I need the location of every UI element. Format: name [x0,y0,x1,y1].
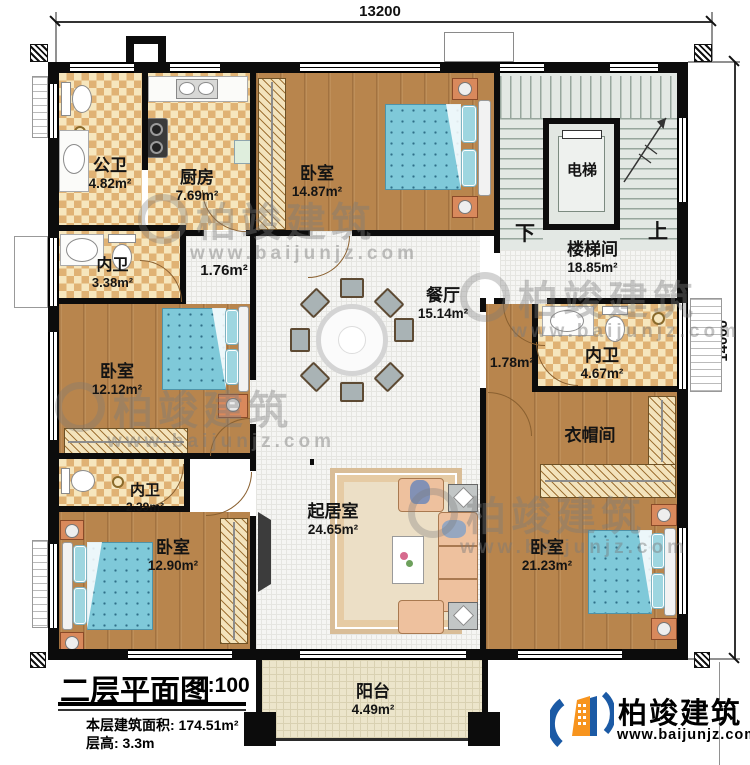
wardrobe-rail [661,400,663,462]
armchair [398,600,444,634]
room-name: 楼梯间 [535,240,650,260]
person-figure [410,480,430,504]
room-label-bedroom-top: 卧室 14.87m² [262,164,372,201]
dim-width-value: 13200 [320,3,440,20]
room-name: 阳台 [318,682,428,702]
bed-pillow [226,310,238,344]
nightstand [651,618,677,640]
toilet-tank [602,306,628,315]
room-area: 14.87m² [262,184,372,200]
stove-burner [150,123,163,136]
toilet-icon [71,470,95,492]
window [70,62,134,73]
dining-chair [340,382,364,402]
room-name: 衣帽间 [535,426,645,446]
room-name: 内卫 [552,346,652,366]
chimney-flue [134,44,158,62]
window [170,62,220,73]
bed-pillow [652,534,664,568]
corner-column [694,652,710,668]
wall [534,386,677,392]
room-name: 卧室 [62,362,172,382]
door-arc [206,472,252,516]
window [48,84,59,138]
window [48,238,59,306]
room-label-stairwell: 楼梯间 18.85m² [535,240,650,277]
room-label-dining: 餐厅 15.14m² [398,286,488,323]
bed-pillow [652,574,664,608]
dim-line-right [734,62,736,659]
window [48,332,59,440]
wardrobe-rail [68,441,184,443]
wall [250,73,256,235]
sink-icon [550,310,584,332]
window [677,528,688,614]
toilet-tank [108,234,136,243]
bed-headboard [238,306,249,392]
wardrobe-rail [271,82,273,226]
wall-stub [256,649,300,660]
bed-pillow [462,106,476,142]
wall [250,236,256,380]
room-area: 7.69m² [147,188,247,204]
toilet-tank [61,468,70,494]
corner-column [30,652,46,668]
room-area: 12.12m² [62,382,172,398]
room-area: 18.85m² [535,260,650,276]
wall [547,298,677,304]
brand-logo-icon [550,686,614,752]
wall [480,388,486,649]
toilet-icon [72,85,92,113]
corner-column [694,44,712,62]
room-name: 餐厅 [398,286,488,306]
room-area: 1.78m² [486,354,538,371]
room-area: 3.38m² [60,275,165,291]
side-table [448,602,478,630]
hall-left-area-label: 1.76m² [188,262,260,280]
room-area: 2.39m² [100,500,190,514]
room-name: 卧室 [118,538,228,558]
toilet-tank [61,82,71,116]
window [48,544,59,628]
room-label-kitchen: 厨房 7.69m² [147,168,247,205]
table-flowers [400,552,408,560]
person-figure [442,520,466,538]
wall-stub [466,649,488,660]
bed-headboard [62,542,73,630]
balcony-parapet [256,738,488,741]
title-underline [58,702,246,706]
toilet-icon [605,316,625,342]
wall [494,73,500,253]
floor-area-text: 本层建筑面积: 174.51m² [86,715,238,735]
hall-right-area-label: 1.78m² [486,354,538,371]
bed-pillow [74,546,86,582]
table-flowers [406,560,413,567]
tv-icon [258,512,271,592]
dining-table-center [338,326,366,354]
wardrobe-rail [545,480,671,482]
dining-chair [290,328,310,352]
room-area: 4.49m² [318,702,428,718]
room-area: 24.65m² [278,522,388,538]
bed-headboard [478,100,491,196]
room-label-bedroom-left: 卧室 12.12m² [62,362,172,399]
brand-name: 柏竣建筑 [618,690,742,732]
ac-platform [14,236,48,308]
elevator-door [562,130,602,139]
title-underline-thin [58,709,246,711]
room-label-elevator: 电梯 [545,162,619,180]
dim-line-top [55,21,712,23]
room-label-bath-right: 内卫 4.67m² [552,346,652,383]
kitchen-sink-bowl [198,82,214,95]
room-name: 卧室 [492,538,602,558]
shower-head-icon [652,312,665,325]
sofa-cushion-line [438,578,478,580]
nightstand [651,504,677,526]
nightstand [452,196,478,218]
room-label-bedroom-bottom-left: 卧室 12.90m² [118,538,228,575]
side-table [448,484,478,512]
room-area: 12.90m² [118,558,228,574]
balcony-pier [468,712,500,746]
window [300,62,440,73]
nightstand [218,394,248,418]
nightstand [452,78,478,100]
wardrobe-rail [233,522,235,640]
wall [186,230,204,236]
room-label-cloakroom: 衣帽间 [535,426,645,446]
floor-plan-canvas: 13200 14000 [0,0,750,765]
plan-scale: 1:100 [196,674,250,698]
wall [250,516,256,649]
room-area: 1.76m² [188,262,260,280]
window [610,62,658,73]
kitchen-sink-bowl [179,82,195,95]
window [518,649,622,660]
room-label-bath-small: 内卫 2.39m² [100,482,190,514]
bed-pillow [462,150,476,186]
stair-direction-arrow [612,100,682,190]
room-label-balcony: 阳台 4.49m² [318,682,428,719]
window [500,62,544,73]
room-name: 内卫 [100,482,190,500]
wall [352,230,500,236]
wall [48,225,186,231]
room-label-bath-left: 内卫 3.38m² [60,256,165,291]
corner-column [30,44,48,62]
floor-height-text: 层高: 3.3m [86,733,154,753]
room-name: 内卫 [60,256,165,275]
room-name: 起居室 [278,502,388,522]
dining-chair [340,278,364,298]
room-area: 21.23m² [492,558,602,574]
window [128,649,232,660]
nightstand [60,520,84,540]
bed-headboard [664,528,676,616]
room-name: 厨房 [147,168,247,188]
roof-outline [444,32,514,62]
sofa-cushion-line [438,545,478,547]
balcony-sliding-door [300,649,466,660]
room-label-living: 起居室 24.65m² [278,502,388,539]
fridge [234,140,251,164]
wall [250,459,256,471]
room-label-bedroom-bottom-right: 卧室 21.23m² [492,538,602,575]
brand-site: www.baijunjz.com [617,727,750,743]
window-sill [32,540,48,628]
window-sill [690,298,722,392]
window [677,303,688,389]
window-sill [32,76,48,138]
bed-pillow [226,350,238,384]
room-name: 卧室 [262,164,372,184]
stove-burner [150,141,163,154]
room-area: 4.67m² [552,366,652,382]
bed-pillow [74,588,86,624]
room-area: 15.14m² [398,306,488,322]
balcony-pier [244,712,276,746]
room-name: 电梯 [545,162,619,180]
wall [310,459,314,465]
window [677,118,688,202]
